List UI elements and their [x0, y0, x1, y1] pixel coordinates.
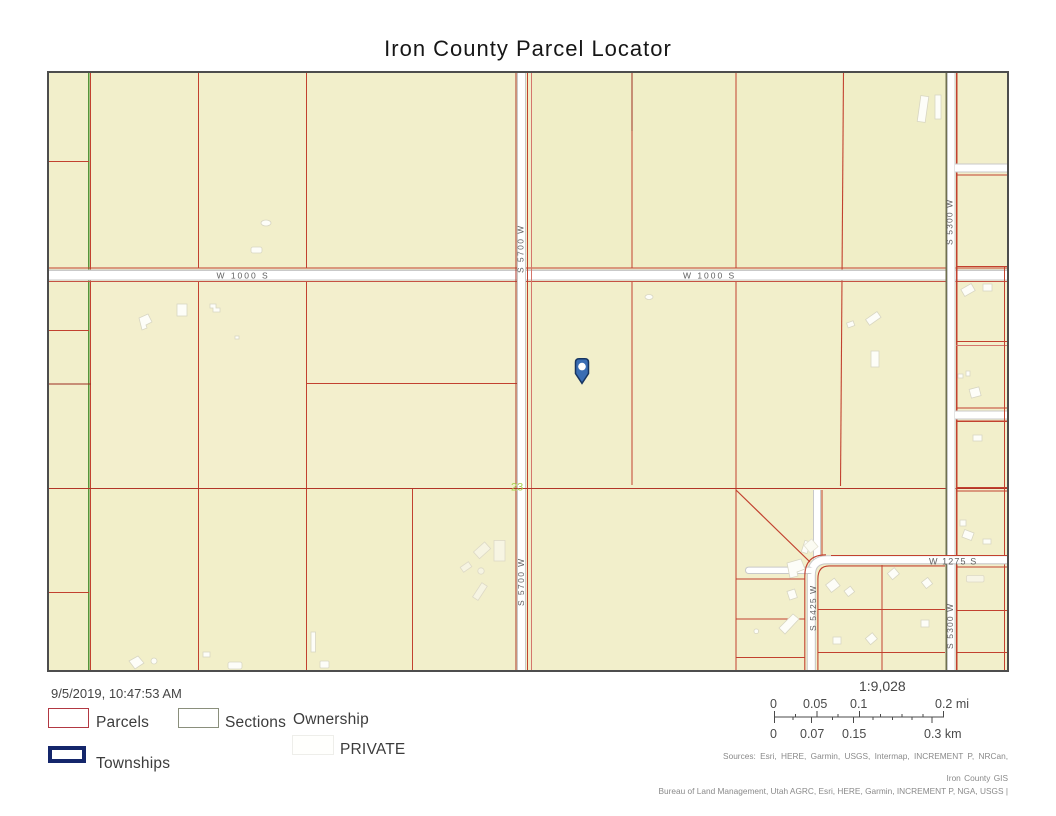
- svg-text:W 1275 S: W 1275 S: [929, 557, 977, 567]
- svg-text:S 5300 W: S 5300 W: [945, 603, 955, 649]
- svg-text:W 1000 S: W 1000 S: [683, 271, 735, 281]
- svg-text:S 5700 W: S 5700 W: [516, 225, 526, 273]
- svg-text:23: 23: [511, 482, 523, 494]
- svg-text:S 5700 W: S 5700 W: [516, 558, 526, 606]
- svg-text:S 5300 W: S 5300 W: [945, 199, 955, 245]
- svg-text:S 5425 W: S 5425 W: [808, 585, 818, 631]
- svg-text:W 1000 S: W 1000 S: [217, 271, 269, 281]
